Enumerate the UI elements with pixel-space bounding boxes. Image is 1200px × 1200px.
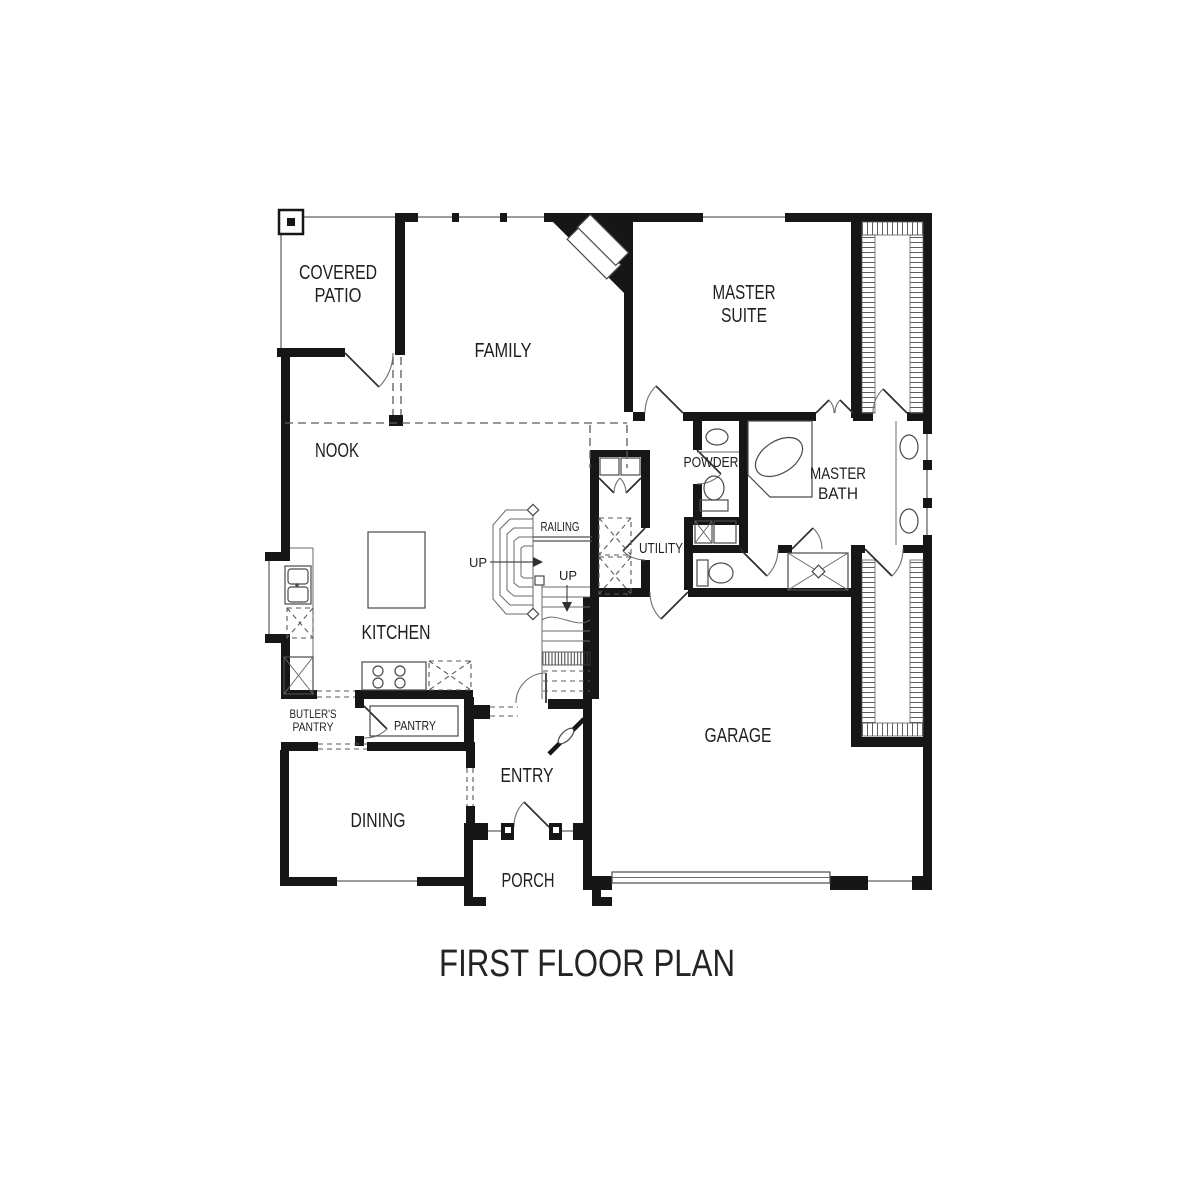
powder-sink <box>697 429 739 452</box>
label-up-run: UP <box>559 568 577 583</box>
patio-corner-marker <box>279 210 303 234</box>
garage-door <box>612 872 830 883</box>
label-entry: ENTRY <box>501 765 554 787</box>
stairs <box>490 458 640 754</box>
closet-shelving <box>862 222 923 736</box>
label-dining: DINING <box>351 810 406 832</box>
label-porch: PORCH <box>502 870 555 892</box>
label-covered-patio-2: PATIO <box>315 285 362 307</box>
oven-cabinet <box>429 661 471 690</box>
patio-door <box>345 353 393 387</box>
hall-closet-panel <box>621 458 640 475</box>
master-vanity <box>896 421 918 545</box>
label-butlers-pantry-1: BUTLER'S <box>290 707 337 721</box>
label-pantry: PANTRY <box>394 718 436 733</box>
porch-right-wall <box>583 840 592 876</box>
label-butlers-pantry-2: PANTRY <box>293 720 334 734</box>
label-nook: NOOK <box>315 440 359 462</box>
porch-column-right <box>549 823 562 840</box>
label-covered-patio-1: COVERED <box>299 262 377 284</box>
garden-tub <box>748 421 812 497</box>
up-arrow-run <box>562 585 572 612</box>
front-door <box>514 802 549 827</box>
label-railing: RAILING <box>541 519 580 534</box>
shower <box>788 553 848 590</box>
label-family: FAMILY <box>475 340 532 362</box>
label-master-bath-1: MASTER <box>810 464 866 483</box>
label-powder: POWDER <box>684 454 739 471</box>
label-kitchen: KITCHEN <box>362 622 431 644</box>
water-closet-door <box>740 549 778 576</box>
utility-fixtures <box>599 518 631 594</box>
newel-post <box>527 504 538 515</box>
washer <box>599 518 631 555</box>
master-suite-door <box>645 386 683 413</box>
label-master-suite-2: SUITE <box>721 305 767 327</box>
coat-closet <box>549 719 584 754</box>
wc-toilet <box>697 560 733 586</box>
nook-column <box>389 415 403 426</box>
newel-post <box>527 608 538 619</box>
up-arrow-winder <box>490 557 543 567</box>
kitchen-sink <box>285 566 311 604</box>
shower-door <box>792 528 822 549</box>
range <box>362 662 426 690</box>
room-labels: COVERED PATIO FAMILY MASTER SUITE NOOK K… <box>290 262 867 892</box>
window-mullion <box>500 213 507 222</box>
label-master-bath-2: BATH <box>818 484 858 503</box>
bath-fixtures <box>695 421 918 590</box>
page-title: FIRST FLOOR PLAN <box>439 943 735 985</box>
patio-right-wall <box>395 213 405 355</box>
powder-toilet <box>700 476 728 511</box>
floor-plan-drawing: COVERED PATIO FAMILY MASTER SUITE NOOK K… <box>0 0 1200 1200</box>
hall-closet-panel <box>600 458 619 475</box>
railing <box>533 537 592 541</box>
stair-hatch <box>543 652 590 665</box>
master-bath-double-doors <box>816 400 853 413</box>
garage-entry-door <box>650 592 688 619</box>
window-mullion <box>452 213 459 222</box>
label-garage: GARAGE <box>705 725 772 747</box>
hall-closet-doors <box>599 478 641 493</box>
dining-left-wall <box>280 750 289 886</box>
pantry-door <box>364 706 387 738</box>
newel-post <box>535 576 544 585</box>
interior-walls <box>281 221 932 906</box>
label-master-suite-1: MASTER <box>713 282 776 304</box>
porch-column-left <box>501 823 514 840</box>
floor-plan-page: COVERED PATIO FAMILY MASTER SUITE NOOK K… <box>0 0 1200 1200</box>
corner-fireplace <box>553 215 633 302</box>
porch-left-wall <box>464 840 473 906</box>
kitchen-island <box>368 532 425 608</box>
label-utility: UTILITY <box>639 541 683 557</box>
label-up-winder: UP <box>469 555 487 570</box>
break-line <box>542 617 590 623</box>
dishwasher <box>287 608 313 638</box>
master-closet-door <box>873 389 907 413</box>
